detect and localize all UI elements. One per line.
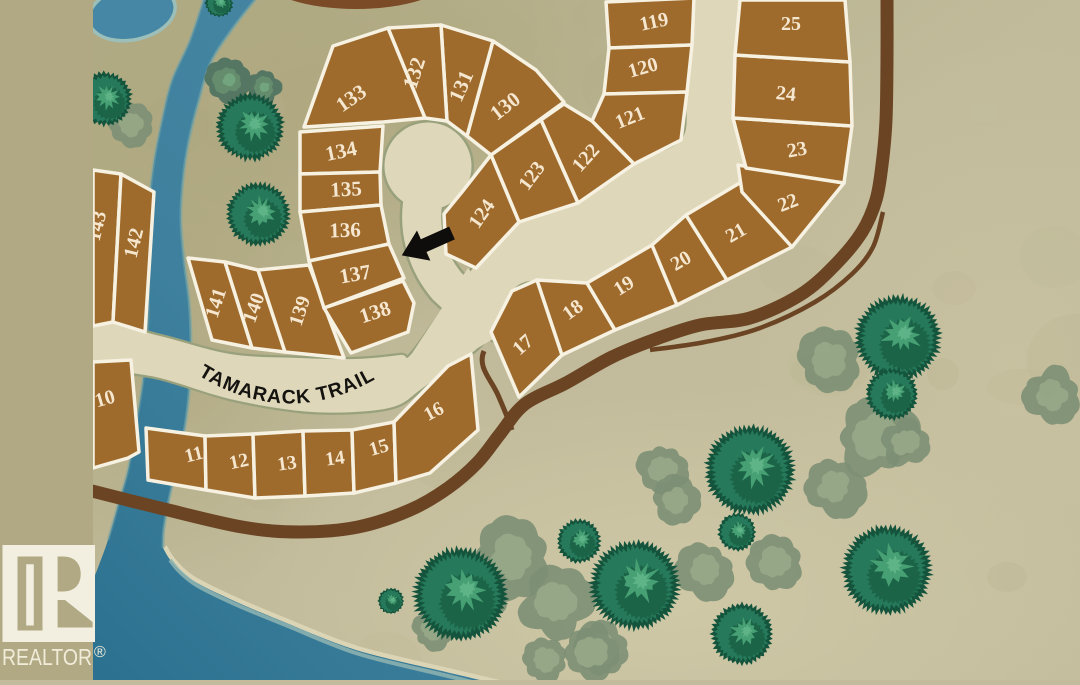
svg-text:REALTOR: REALTOR xyxy=(2,644,92,670)
svg-text:13: 13 xyxy=(276,452,298,476)
svg-text:14: 14 xyxy=(324,447,346,471)
svg-text:135: 135 xyxy=(330,176,363,202)
svg-text:23: 23 xyxy=(785,137,809,162)
svg-text:®: ® xyxy=(94,644,106,661)
svg-text:24: 24 xyxy=(775,82,797,106)
svg-text:136: 136 xyxy=(329,217,361,242)
svg-text:25: 25 xyxy=(781,13,801,35)
